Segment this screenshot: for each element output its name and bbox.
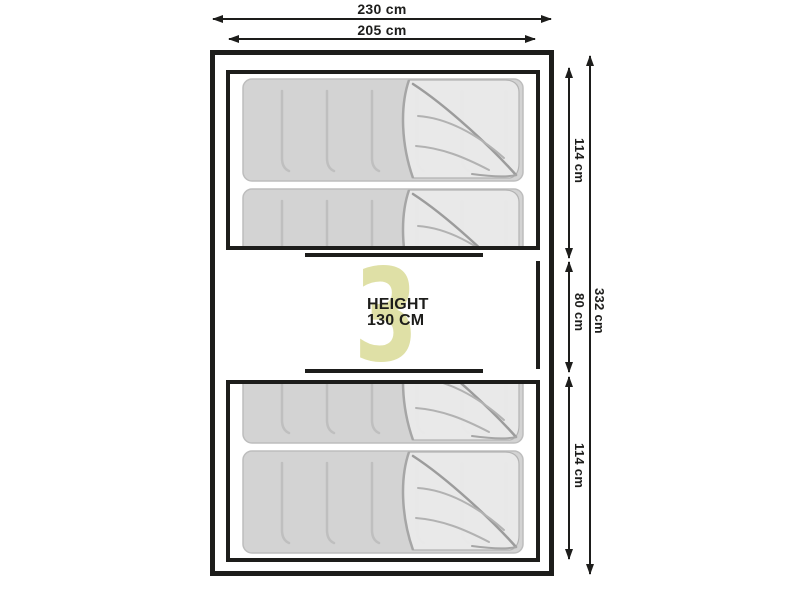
arrow-up-icon	[586, 55, 594, 66]
height-label-line2: 130 CM	[367, 313, 429, 329]
dim-total-depth-line	[589, 56, 591, 574]
height-label: HEIGHT 130 CM	[367, 297, 429, 329]
sleeping-bag-illustration	[242, 188, 524, 250]
dim-bottom-bedroom-depth-line	[568, 377, 570, 559]
dim-top-bedroom-depth-label: 114 cm	[572, 138, 587, 183]
middle-right-wall	[536, 261, 540, 369]
dim-outer-width-label: 230 cm	[213, 1, 551, 17]
arrow-down-icon	[565, 549, 573, 560]
arrow-left-icon	[228, 35, 239, 43]
bedroom-bottom	[226, 380, 540, 562]
arrow-down-icon	[586, 564, 594, 575]
sleeping-bag-illustration	[242, 380, 524, 444]
arrow-up-icon	[565, 67, 573, 78]
dim-inner-width-line	[229, 38, 535, 40]
dim-outer-width-line	[213, 18, 551, 20]
height-label-line1: HEIGHT	[367, 297, 429, 313]
dim-middle-section-depth-label: 80 cm	[572, 293, 587, 331]
bedroom-top	[226, 70, 540, 250]
dim-inner-width-label: 205 cm	[229, 22, 535, 38]
dim-top-bedroom-depth-line	[568, 68, 570, 258]
dim-total-depth-label: 332 cm	[592, 288, 607, 334]
sleeping-bag-illustration	[242, 450, 524, 554]
dim-bottom-bedroom-depth-label: 114 cm	[572, 443, 587, 488]
sleeping-bag-illustration	[242, 78, 524, 182]
arrow-up-icon	[565, 261, 573, 272]
arrow-right-icon	[525, 35, 536, 43]
dim-middle-section-depth-line	[568, 262, 570, 372]
arrow-right-icon	[541, 15, 552, 23]
arrow-down-icon	[565, 362, 573, 373]
arrow-down-icon	[565, 248, 573, 259]
arrow-left-icon	[212, 15, 223, 23]
arrow-up-icon	[565, 376, 573, 387]
